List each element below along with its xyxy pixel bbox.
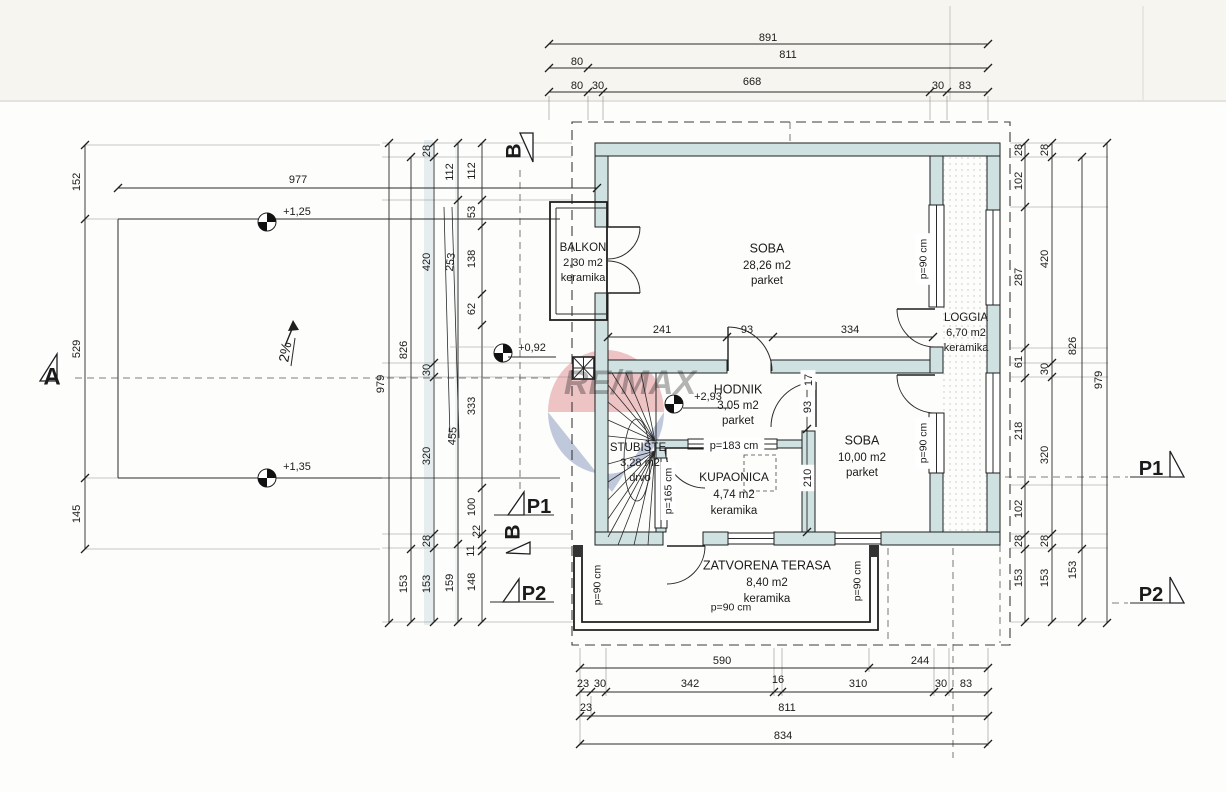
svg-text:100: 100 (466, 498, 478, 516)
svg-text:153: 153 (398, 575, 410, 593)
left-dims-label: 112 (444, 163, 456, 181)
left-dims-label: 62 (466, 303, 478, 315)
top-dims-label: 80 (571, 80, 583, 92)
svg-text:334: 334 (841, 324, 859, 336)
svg-text:112: 112 (466, 162, 478, 180)
svg-text:80: 80 (571, 80, 583, 92)
section-p1-left-flag (508, 492, 524, 515)
svg-text:979: 979 (375, 375, 387, 393)
svg-text:P1: P1 (1139, 458, 1163, 480)
svg-text:LOGGIA: LOGGIA (944, 312, 988, 324)
svg-text:+1,35: +1,35 (283, 461, 311, 473)
left-dims-label: 100 (466, 498, 478, 516)
level-plus-0-92: +0,92 (518, 342, 546, 354)
svg-text:153: 153 (1067, 561, 1079, 579)
svg-text:23: 23 (580, 702, 592, 714)
bottom-dims-label: 23 (577, 678, 589, 690)
bottom-dims-label: 30 (594, 678, 606, 690)
parapet-terasa-left: p=90 cm (592, 564, 604, 605)
right-dims-label: 218 (1013, 422, 1025, 440)
svg-text:keramika: keramika (944, 342, 990, 354)
svg-text:979: 979 (1093, 371, 1105, 389)
svg-text:53: 53 (466, 206, 478, 218)
bottom-dims-label: 16 (772, 674, 784, 686)
right-dims-label: 61 (1013, 356, 1025, 368)
svg-text:4,74 m2: 4,74 m2 (713, 489, 755, 501)
room-labels-label: 6,70 m2 (946, 327, 986, 339)
room-label-loggia: LOGGIA (944, 312, 988, 324)
svg-text:22: 22 (471, 525, 483, 537)
section-p2-left-flag (503, 579, 519, 602)
svg-text:keramika: keramika (561, 272, 607, 284)
svg-text:30: 30 (421, 364, 433, 376)
room-labels-label: 3,05 m2 (717, 400, 759, 412)
svg-text:3,28 m2: 3,28 m2 (620, 457, 660, 469)
section-b-bottom: B (501, 524, 524, 539)
svg-text:11: 11 (465, 545, 477, 556)
svg-text:153: 153 (421, 575, 433, 593)
svg-text:keramika: keramika (711, 505, 758, 517)
svg-text:30: 30 (592, 80, 604, 92)
room-labels-label: keramika (711, 505, 758, 517)
left-dims-label: 455 (446, 426, 459, 445)
inner-dims-label: 93 (741, 324, 753, 336)
top-dims-label: 83 (959, 80, 971, 92)
svg-text:P2: P2 (1139, 584, 1163, 606)
room-label-balkon: BALKON (560, 242, 607, 254)
left-dims-label: 30 (421, 364, 433, 376)
svg-text:148: 148 (466, 573, 478, 591)
scan-artifacts (0, 0, 1226, 625)
left-dims-label: 11 (465, 545, 477, 556)
bottom-dims-label: 23 (580, 702, 592, 714)
room-labels-label: 10,00 m2 (838, 452, 886, 464)
svg-text:p=90 cm: p=90 cm (852, 560, 864, 601)
room-label-soba-1: SOBA (750, 241, 785, 255)
svg-text:138: 138 (466, 250, 478, 268)
right-dims-label: 320 (1039, 446, 1051, 464)
svg-text:STUBIŠTE: STUBIŠTE (610, 441, 667, 454)
svg-text:drvo: drvo (629, 472, 650, 484)
floor-plan-svg: 8918081180306683083590244233034216310308… (0, 0, 1226, 792)
svg-text:p=90 cm: p=90 cm (592, 564, 604, 605)
left-dims-label: 320 (421, 447, 433, 465)
svg-text:p=90 cm: p=90 cm (918, 422, 930, 463)
room-labels-label: 8,40 m2 (746, 577, 788, 589)
svg-text:parket: parket (722, 415, 755, 427)
section-p1-right: P1 (1139, 458, 1163, 480)
svg-text:420: 420 (421, 253, 433, 271)
svg-text:30: 30 (594, 678, 606, 690)
room-labels-label: 4,74 m2 (713, 489, 755, 501)
svg-text:287: 287 (1013, 268, 1025, 286)
svg-text:210: 210 (802, 469, 814, 487)
svg-text:+1,25: +1,25 (283, 206, 311, 218)
right-dims-label: 420 (1039, 250, 1051, 268)
svg-text:244: 244 (911, 655, 929, 667)
svg-text:529: 529 (71, 340, 83, 358)
room-labels-label: keramika (561, 272, 607, 284)
left-dims-label: 112 (466, 162, 478, 180)
svg-text:159: 159 (444, 574, 456, 592)
svg-text:30: 30 (1039, 363, 1051, 375)
right-dims-label: 287 (1013, 268, 1025, 286)
svg-text:3,05 m2: 3,05 m2 (717, 400, 759, 412)
svg-text:310: 310 (849, 678, 867, 690)
section-b-top: B (502, 143, 525, 158)
right-dims-label: 30 (1039, 363, 1051, 375)
svg-text:28: 28 (421, 535, 433, 547)
right-dims-label: 153 (1039, 569, 1051, 587)
svg-text:153: 153 (1013, 569, 1025, 587)
left-dims-label: 28 (421, 535, 433, 547)
svg-text:102: 102 (1013, 172, 1025, 190)
right-dims-label: 826 (1067, 337, 1079, 355)
bottom-dims-label: 30 (935, 678, 947, 690)
svg-text:153: 153 (1039, 569, 1051, 587)
svg-text:28: 28 (1013, 144, 1025, 156)
left-dims-label: 420 (421, 253, 433, 271)
right-dims-label: 153 (1013, 569, 1025, 587)
bottom-dims-label: 83 (960, 678, 972, 690)
svg-text:826: 826 (1067, 337, 1079, 355)
top-dims-label: 30 (592, 80, 604, 92)
svg-text:152: 152 (71, 173, 83, 191)
svg-text:253: 253 (444, 252, 458, 272)
svg-text:342: 342 (681, 678, 699, 690)
svg-text:parket: parket (846, 467, 879, 479)
section-p2-right-flag (1170, 577, 1184, 603)
left-dims-label: 333 (466, 397, 478, 415)
svg-text:93: 93 (741, 324, 753, 336)
svg-text:891: 891 (759, 32, 777, 44)
left-dims-label: 53 (466, 206, 478, 218)
level-icon-1-35 (258, 469, 276, 487)
right-dims-label: 28 (1039, 144, 1051, 156)
svg-text:811: 811 (778, 702, 796, 714)
svg-text:keramika: keramika (744, 593, 791, 605)
svg-text:SOBA: SOBA (845, 433, 880, 447)
svg-text:+2,93: +2,93 (694, 391, 722, 403)
svg-text:62: 62 (466, 303, 478, 315)
room-labels-label: keramika (944, 342, 990, 354)
bottom-dims-label: 342 (681, 678, 699, 690)
svg-text:145: 145 (71, 505, 83, 523)
svg-text:p=165 cm: p=165 cm (663, 468, 675, 515)
svg-text:parket: parket (751, 275, 784, 287)
room-labels-label: parket (751, 275, 784, 287)
svg-text:2,30 m2: 2,30 m2 (563, 257, 603, 269)
bottom-dims-label: 834 (774, 730, 792, 742)
left-dims-label: 826 (398, 341, 410, 359)
svg-text:420: 420 (1039, 250, 1051, 268)
left-dims-label: 138 (466, 250, 478, 268)
top-dims-label: 668 (743, 76, 761, 88)
parapet-stubiste-window: p=165 cm (661, 462, 676, 520)
svg-text:28,26 m2: 28,26 m2 (743, 260, 791, 272)
parapet-hodnik-window: p=183 cm (704, 438, 765, 453)
svg-text:218: 218 (1013, 422, 1025, 440)
bottom-dims-label: 310 (849, 678, 867, 690)
room-labels-label: parket (722, 415, 755, 427)
svg-text:16: 16 (772, 674, 784, 686)
svg-text:241: 241 (653, 324, 671, 336)
inner-dims-label: 977 (289, 174, 307, 186)
parapet-loggia-window-1: p=90 cm (916, 233, 931, 285)
room-labels-label: parket (846, 467, 879, 479)
svg-text:83: 83 (959, 80, 971, 92)
svg-text:590: 590 (713, 655, 731, 667)
left-dims-label: 153 (421, 575, 433, 593)
svg-text:B: B (502, 143, 525, 158)
svg-text:23: 23 (577, 678, 589, 690)
svg-text:30: 30 (935, 678, 947, 690)
svg-text:83: 83 (960, 678, 972, 690)
room-label-kupaonica: KUPAONICA (699, 470, 769, 484)
dim-top-891: 891 (759, 32, 777, 44)
parapet-loggia-window-2: p=90 cm (916, 417, 931, 469)
yard-outline (118, 219, 560, 478)
room-labels-label: keramika (744, 593, 791, 605)
right-dims-label: 153 (1067, 561, 1079, 579)
inner-dims-label: 210 (800, 465, 815, 491)
right-dims-label: 28 (1039, 535, 1051, 547)
svg-text:826: 826 (398, 341, 410, 359)
right-dims-label: 102 (1013, 172, 1025, 190)
room-labels-label: 28,26 m2 (743, 260, 791, 272)
room-labels-label: 3,28 m2 (620, 457, 660, 469)
svg-text:28: 28 (1039, 535, 1051, 547)
svg-text:RE/MAX: RE/MAX (564, 364, 699, 402)
level-plus-2-93: +2,93 (694, 391, 722, 403)
top-dims-label: 80 (571, 56, 583, 68)
level-plus-1-25: +1,25 (283, 206, 311, 218)
svg-text:8,40 m2: 8,40 m2 (746, 577, 788, 589)
section-p2-right: P2 (1139, 584, 1163, 606)
svg-text:10,00 m2: 10,00 m2 (838, 452, 886, 464)
svg-text:ZATVORENA TERASA: ZATVORENA TERASA (703, 558, 832, 572)
section-a: A (43, 363, 60, 390)
svg-text:112: 112 (444, 163, 456, 181)
svg-text:811: 811 (779, 49, 797, 61)
left-dims-label: 152 (71, 173, 83, 191)
top-dims-label: 30 (932, 80, 944, 92)
left-dims-label: 159 (444, 574, 456, 592)
svg-text:977: 977 (289, 174, 307, 186)
inner-dims-label: 17 (801, 370, 816, 390)
bottom-dims-label: 590 (713, 655, 731, 667)
room-labels-label: drvo (629, 472, 650, 484)
inner-dims-label: 334 (841, 324, 859, 336)
bottom-dims-label: 811 (778, 702, 796, 714)
svg-text:333: 333 (466, 397, 478, 415)
svg-text:61: 61 (1013, 356, 1025, 368)
floor-plan-page: 8918081180306683083590244233034216310308… (0, 0, 1226, 792)
left-dims-label: 28 (421, 145, 433, 157)
right-dims-label: 102 (1013, 500, 1025, 518)
left-dims-label: 253 (444, 252, 458, 272)
level-icon-1-25 (258, 213, 276, 231)
room-label-stubiste: STUBIŠTE (610, 441, 667, 454)
svg-text:KUPAONICA: KUPAONICA (699, 470, 769, 484)
svg-text:SOBA: SOBA (750, 241, 785, 255)
bottom-dims-label: 244 (911, 655, 929, 667)
svg-text:28: 28 (1039, 144, 1051, 156)
svg-text:834: 834 (774, 730, 792, 742)
svg-text:p=90 cm: p=90 cm (918, 238, 930, 279)
section-p1-left: P1 (527, 496, 551, 518)
svg-text:+0,92: +0,92 (518, 342, 546, 354)
room-label-soba-2: SOBA (845, 433, 880, 447)
svg-text:102: 102 (1013, 500, 1025, 518)
svg-text:320: 320 (1039, 446, 1051, 464)
section-p2-left: P2 (522, 583, 546, 605)
svg-text:455: 455 (446, 426, 459, 445)
right-dims-label: 28 (1013, 144, 1025, 156)
left-dims-label: 145 (71, 505, 83, 523)
svg-text:28: 28 (1013, 535, 1025, 547)
parapet-terasa-right: p=90 cm (852, 560, 864, 601)
svg-text:668: 668 (743, 76, 761, 88)
left-dims-label: 153 (398, 575, 410, 593)
svg-text:B: B (501, 524, 524, 539)
section-p1-right-flag (1170, 451, 1184, 477)
room-labels-label: 2,30 m2 (563, 257, 603, 269)
svg-text:28: 28 (421, 145, 433, 157)
svg-text:p=183 cm: p=183 cm (710, 440, 759, 452)
watermark-text: RE/MAX (564, 364, 699, 402)
level-plus-1-35: +1,35 (283, 461, 311, 473)
svg-text:320: 320 (421, 447, 433, 465)
svg-text:BALKON: BALKON (560, 242, 607, 254)
inner-dims-label: 241 (653, 324, 671, 336)
top-dims-label: 811 (779, 49, 797, 61)
svg-text:6,70 m2: 6,70 m2 (946, 327, 986, 339)
left-dims-label: 22 (471, 525, 483, 537)
svg-text:17: 17 (803, 374, 815, 386)
svg-text:30: 30 (932, 80, 944, 92)
right-dims-label: 979 (1093, 371, 1105, 389)
svg-text:P2: P2 (522, 583, 546, 605)
svg-text:P1: P1 (527, 496, 551, 518)
svg-text:80: 80 (571, 56, 583, 68)
inner-dims-label: 93 (800, 397, 815, 417)
room-label-terasa: ZATVORENA TERASA (703, 558, 832, 572)
left-dims-label: 979 (375, 375, 387, 393)
right-dims-label: 28 (1013, 535, 1025, 547)
svg-text:A: A (43, 363, 60, 390)
svg-text:93: 93 (802, 401, 814, 413)
left-dims-label: 148 (466, 573, 478, 591)
left-dims-label: 529 (71, 340, 83, 358)
